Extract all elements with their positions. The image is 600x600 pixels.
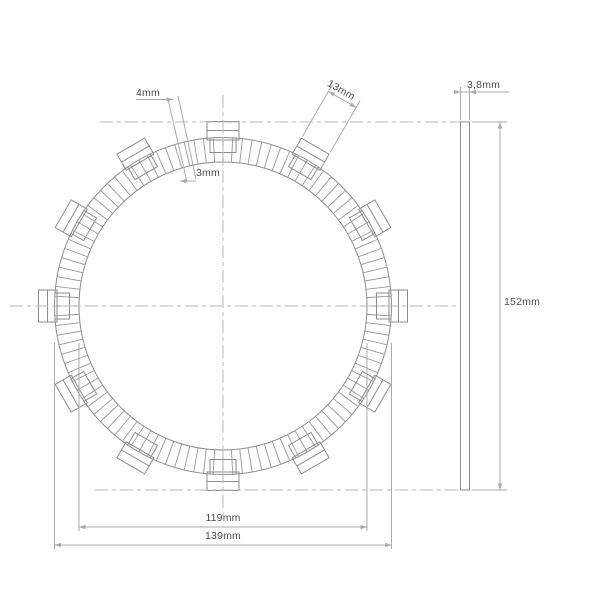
- overall-diameter-dimension-label: 152mm: [504, 296, 540, 308]
- pad-width-outer-dimension-label: 4mm: [136, 87, 160, 99]
- plate-thickness-dimension-label: 3,8mm: [467, 79, 500, 91]
- pad-width-inner-dimension-label: 3mm: [196, 167, 220, 179]
- drawing-canvas: 4mm 3mm 13mm 3,8mm 152mm 119mm 139mm: [0, 0, 600, 600]
- friction-ring-outer-diameter-dimension-label: 139mm: [205, 530, 241, 542]
- inner-diameter-dimension-label: 119mm: [205, 512, 240, 524]
